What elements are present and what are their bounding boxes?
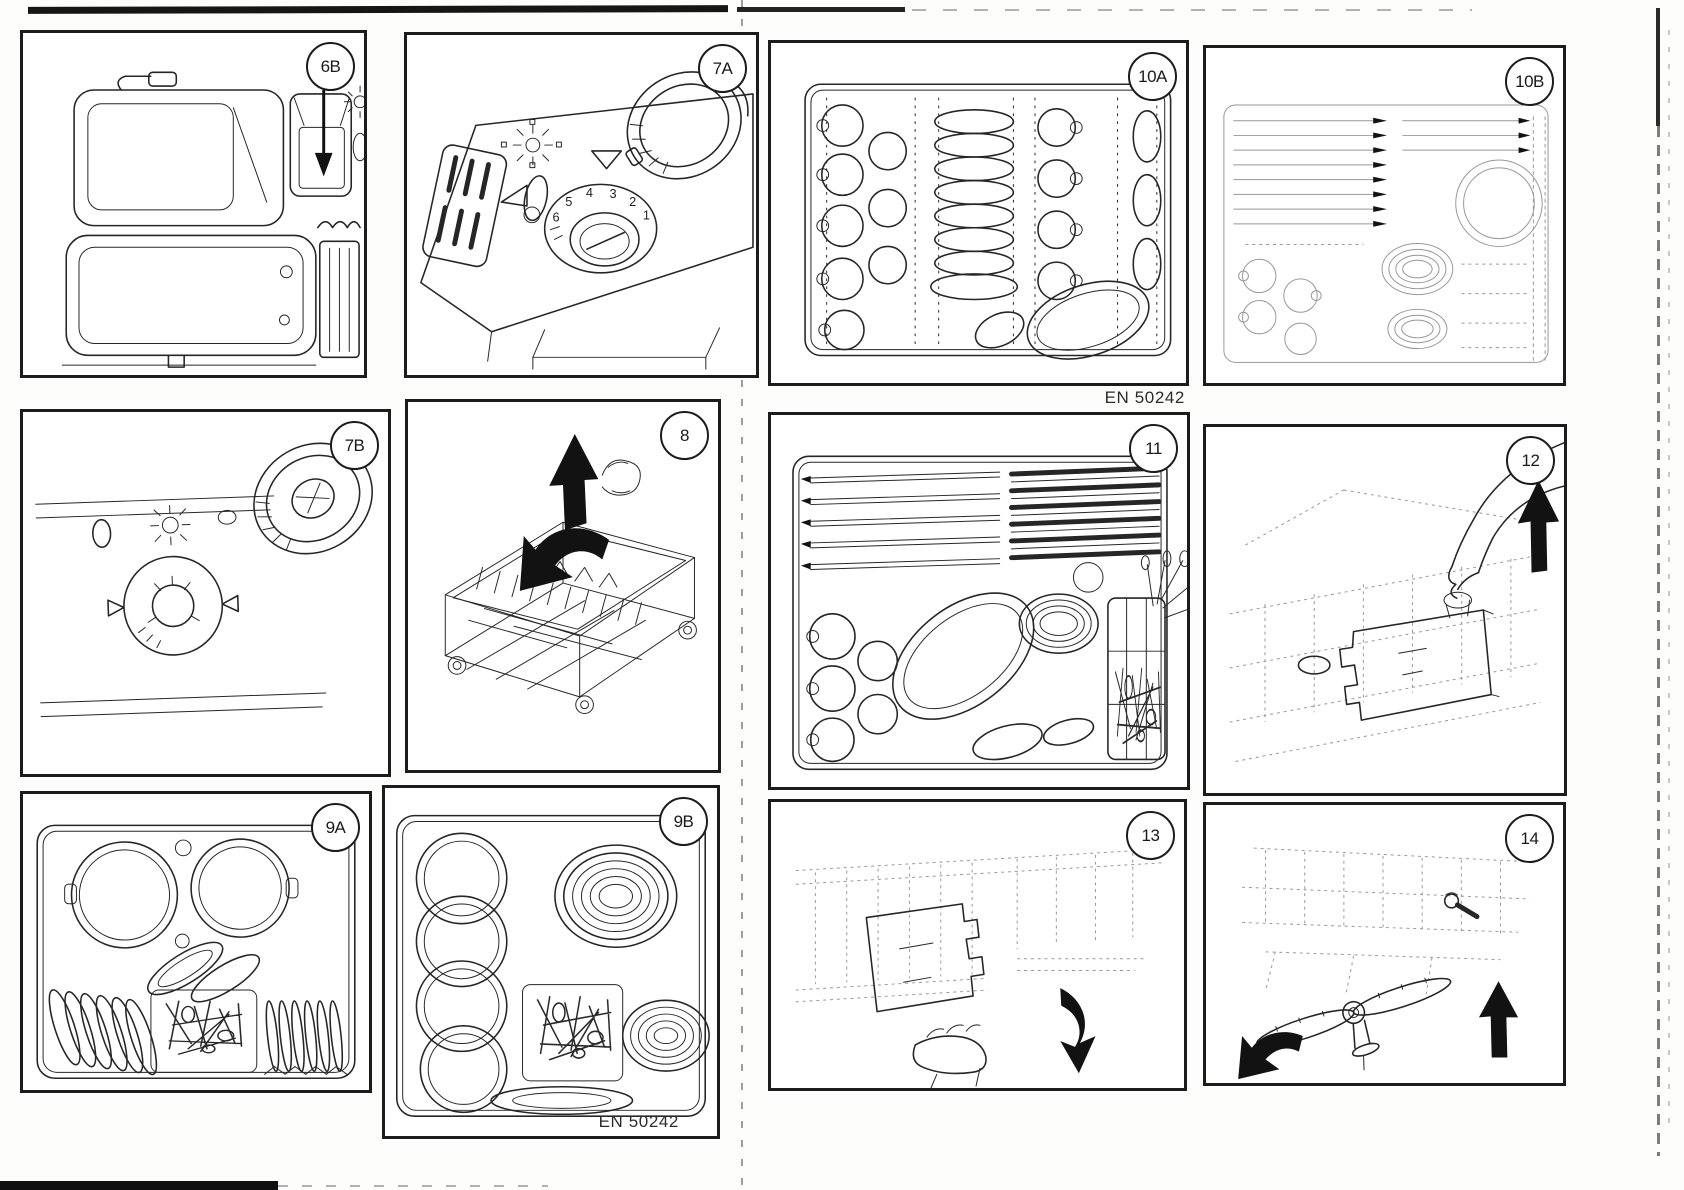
panel-7a: 7A <box>404 32 759 378</box>
cup-icons <box>807 614 898 762</box>
figure-badge-6b: 6B <box>306 42 355 91</box>
rack-rails <box>796 849 1164 1002</box>
door-surface <box>421 94 753 369</box>
large-plate-column <box>416 833 506 1112</box>
saucer-stacks <box>1382 243 1453 348</box>
scan-artifact-right-edge-dashes <box>1657 126 1660 1156</box>
bowl-stack <box>1019 594 1098 653</box>
panel-9b: 9B <box>382 785 720 1139</box>
spray-arm <box>1253 970 1468 1083</box>
figure-badge-9b: 9B <box>659 797 708 846</box>
figure-badge-13: 13 <box>1126 811 1175 860</box>
svg-text:1: 1 <box>643 208 650 223</box>
manual-page: 6B <box>0 0 1684 1190</box>
rotate-arrow-icon <box>1238 1032 1303 1079</box>
selector-dial: 6 5 4 3 2 1 <box>545 184 657 272</box>
notched-board <box>866 904 984 1012</box>
scan-artifact-top-bar <box>28 5 728 14</box>
figure-badge-7a: 7A <box>698 44 747 93</box>
svg-text:4: 4 <box>586 185 593 200</box>
figure-badge-10a: 10A <box>1128 52 1177 101</box>
panel-7b: 7B <box>20 409 391 777</box>
scan-artifact-bottom-dashes <box>278 1185 548 1187</box>
scan-artifact-right-edge-dots <box>1668 30 1670 1130</box>
selector-dial <box>107 554 240 657</box>
figure-badge-14: 14 <box>1505 814 1554 863</box>
lower-rack-illustration <box>408 402 718 770</box>
panel-10a: 10A <box>768 40 1189 386</box>
panel-6b: 6B <box>20 30 367 378</box>
rotate-arrow-icon <box>520 528 609 591</box>
svg-text:5: 5 <box>565 194 572 209</box>
mount-nut <box>1445 893 1477 917</box>
upper-basket-alt-illustration <box>1206 48 1563 383</box>
sun-icon <box>150 505 191 546</box>
svg-text:3: 3 <box>610 186 617 201</box>
skewer-rows <box>1234 118 1531 227</box>
cutlery-basket <box>523 985 623 1081</box>
figure-badge-8: 8 <box>660 411 709 460</box>
cup-icons-left <box>817 105 906 350</box>
rack-wireframe <box>1242 848 1530 995</box>
panel-13: 13 <box>768 799 1187 1091</box>
figure-badge-9a: 9A <box>311 803 360 852</box>
cup-icons <box>1239 259 1322 354</box>
tray-rows-right <box>1011 468 1159 558</box>
panel-8: 8 <box>405 399 721 773</box>
figure-badge-11: 11 <box>1129 424 1178 473</box>
scan-artifact-right-edge <box>1656 8 1660 126</box>
lid-icons <box>141 933 266 1010</box>
standard-caption-10a: EN 50242 <box>965 388 1185 408</box>
panel-10b: 10B <box>1203 45 1566 386</box>
plate-row <box>264 1000 347 1074</box>
sun-icon <box>501 120 561 168</box>
pot-icons <box>65 839 298 948</box>
curved-down-arrow-icon <box>1060 988 1095 1073</box>
vent-grille <box>421 143 508 268</box>
scan-artifact-top-dashes <box>912 9 1472 11</box>
bowl-icon <box>1456 160 1542 246</box>
upper-basket-illustration <box>771 43 1186 383</box>
oval-dish <box>970 267 1159 373</box>
figure-badge-12: 12 <box>1506 436 1555 485</box>
panel-11: 11 <box>768 412 1190 790</box>
hand-icon <box>602 460 640 495</box>
cutlery-basket <box>1108 551 1187 760</box>
dispenser-body <box>62 72 360 367</box>
rinse-aid-top-illustration <box>23 412 388 774</box>
plate-fan <box>43 987 162 1077</box>
down-arrow-icon <box>315 153 333 177</box>
cup-icons-right <box>1038 109 1161 300</box>
hand-icon <box>913 1025 986 1088</box>
insert-support-illustration <box>1206 427 1564 793</box>
panel-14: 14 <box>1203 802 1566 1086</box>
up-arrow-icon <box>1479 981 1518 1057</box>
scan-artifact-top-bar-2 <box>737 7 905 12</box>
plate-stack-top <box>555 845 677 947</box>
panel-12: 12 <box>1203 424 1567 796</box>
svg-text:2: 2 <box>629 194 636 209</box>
upper-basket-trays-illustration <box>771 415 1187 787</box>
up-arrow-icon <box>549 434 598 530</box>
standard-caption-9b: EN 50242 <box>599 1112 679 1132</box>
svg-text:6: 6 <box>553 210 560 225</box>
up-arrow-icon <box>1518 480 1559 572</box>
rack-outline <box>1224 105 1548 362</box>
insert-support-lower-illustration <box>771 802 1184 1088</box>
scan-artifact-bottom-bar <box>0 1181 278 1190</box>
tray-rows-left <box>801 472 1000 569</box>
cutlery-basket <box>151 990 257 1072</box>
sun-icon <box>344 86 364 161</box>
figure-badge-7b: 7B <box>330 421 379 470</box>
plate-stack-small <box>623 1000 709 1071</box>
rinse-aid-dispenser-illustration: 6 5 4 3 2 1 <box>407 35 756 375</box>
figure-badge-10b: 10B <box>1505 57 1554 106</box>
panel-9a: 9A <box>20 791 372 1093</box>
saucer-stack <box>931 110 1017 300</box>
